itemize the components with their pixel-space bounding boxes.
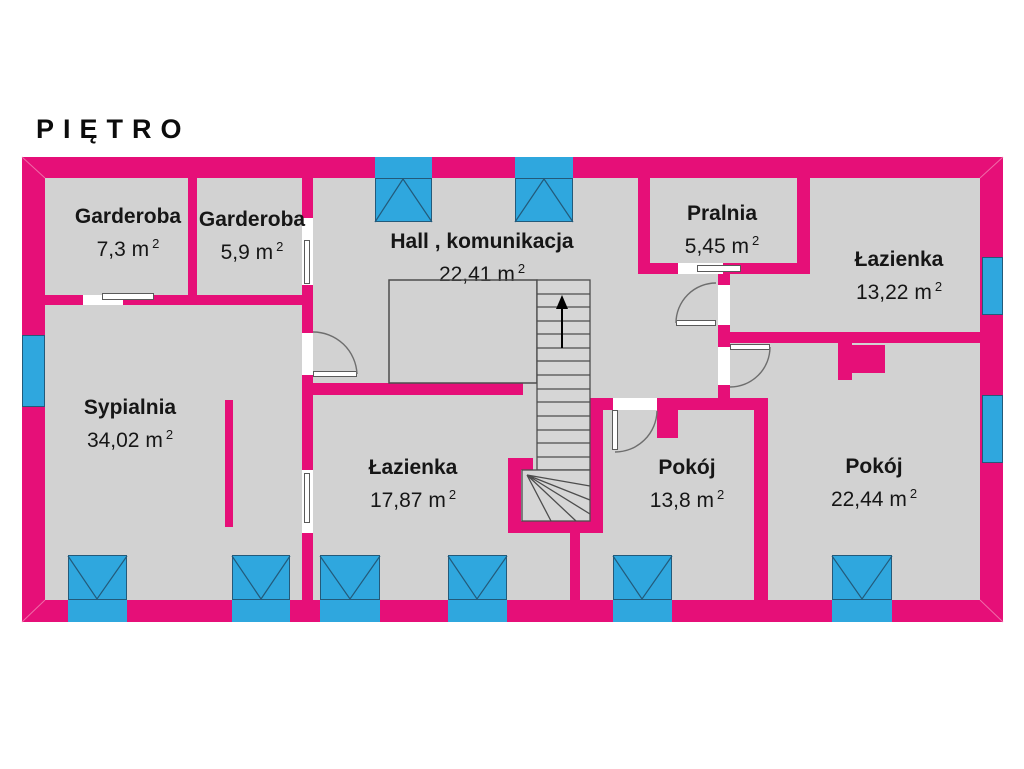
room-name: Łazienka: [303, 454, 523, 481]
roof-window: [832, 600, 892, 622]
wall-pokoj1-stub: [657, 410, 678, 438]
wall-chimney-block: [851, 345, 885, 373]
room-name: Pokój: [764, 453, 984, 480]
skylight-window: [515, 157, 573, 178]
roof-window: [68, 555, 127, 600]
room-name: Sypialnia: [20, 394, 240, 421]
roof-window: [832, 555, 892, 600]
skylight-window: [375, 157, 432, 178]
wall-lazienka-pokoj2: [718, 332, 1003, 343]
wall-lazienka-pokoj1: [570, 533, 580, 600]
room-label-lazienka-dolna: Łazienka 17,87 m2: [303, 454, 523, 514]
door-opening-pokoj2: [718, 347, 730, 385]
roof-window: [68, 600, 127, 622]
door-opening-sypialnia-hall: [302, 333, 313, 375]
floorplan-canvas: PIĘTRO: [0, 0, 1024, 769]
wall-outer-top: [22, 157, 1003, 178]
room-name: Pralnia: [612, 200, 832, 227]
door-leaf-lazienka-gorna: [676, 320, 716, 326]
room-label-garderoba-2: Garderoba 5,9 m2: [142, 206, 362, 266]
roof-window: [613, 600, 672, 622]
room-label-hall: Hall , komunikacja 22,41 m2: [352, 228, 612, 288]
room-area: 22,41 m2: [352, 255, 612, 288]
wall-hall-lazienka: [313, 383, 523, 395]
roof-window: [320, 555, 380, 600]
door-leaf-pokoj1: [612, 410, 618, 450]
door-leaf-pokoj2: [730, 344, 770, 350]
wall-chimney-stem: [838, 343, 852, 380]
door-opening-lazienka-gorna: [718, 285, 730, 325]
room-label-pokoj-2: Pokój 22,44 m2: [764, 453, 984, 513]
room-name: Łazienka: [789, 246, 1009, 273]
room-area: 34,02 m2: [20, 421, 240, 454]
door-leaf-sypialnia-hall: [313, 371, 357, 377]
room-area: 22,44 m2: [764, 480, 984, 513]
roof-window: [320, 600, 380, 622]
wall-outer-right: [980, 157, 1003, 622]
roof-window: [448, 555, 507, 600]
roof-window: [232, 555, 290, 600]
room-label-lazienka-gorna: Łazienka 13,22 m2: [789, 246, 1009, 306]
roof-window: [613, 555, 672, 600]
skylight-window: [375, 178, 432, 222]
room-area: 17,87 m2: [303, 481, 523, 514]
door-opening-pokoj1: [613, 398, 657, 410]
skylight-window: [515, 178, 573, 222]
wall-stairs-south: [508, 521, 603, 533]
door-leaf-garderoba1: [102, 293, 154, 300]
room-name: Garderoba: [142, 206, 362, 233]
room-name: Hall , komunikacja: [352, 228, 612, 255]
roof-window: [448, 600, 507, 622]
room-area: 5,9 m2: [142, 233, 362, 266]
room-label-sypialnia: Sypialnia 34,02 m2: [20, 394, 240, 454]
door-leaf-pralnia: [697, 265, 741, 272]
window-pokoj2-east: [982, 395, 1003, 463]
room-area: 13,22 m2: [789, 273, 1009, 306]
roof-window: [232, 600, 290, 622]
floor-title: PIĘTRO: [36, 114, 191, 145]
